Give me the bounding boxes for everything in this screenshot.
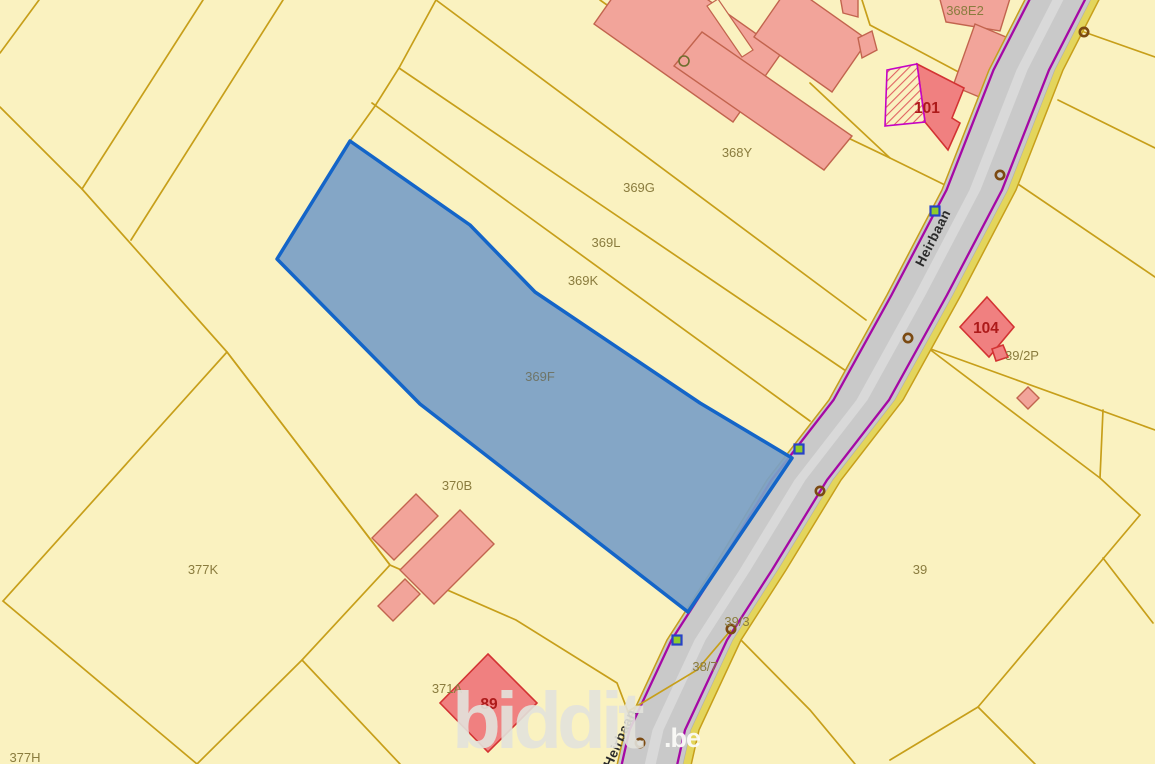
parcel-label-38-7: 38/7	[692, 659, 717, 674]
parcel-label-39-2P: 39/2P	[1005, 348, 1039, 363]
watermark-be-suffix: .be	[664, 723, 701, 753]
parcel-label-39: 39	[913, 562, 927, 577]
building-number-101: 101	[914, 100, 940, 117]
parcel-label-370B: 370B	[442, 478, 472, 493]
parcel-label-369K: 369K	[568, 273, 599, 288]
survey-point-marker	[673, 636, 682, 645]
watermark-biddit: biddit	[452, 676, 644, 764]
building-number-104: 104	[973, 320, 999, 337]
parcel-label-39-3: 39/3	[724, 614, 749, 629]
parcel-label-369G: 369G	[623, 180, 655, 195]
parcel-label-377K: 377K	[188, 562, 219, 577]
map-viewport[interactable]: 368E2368Y369G369L369K370B377K377H371A39/…	[0, 0, 1155, 764]
survey-point-marker	[795, 445, 804, 454]
parcel-label-368E2: 368E2	[946, 3, 984, 18]
parcel-label-369L: 369L	[592, 235, 621, 250]
parcel-label-368Y: 368Y	[722, 145, 753, 160]
parcel-label-377H: 377H	[9, 750, 40, 764]
parcel-label-369F: 369F	[525, 369, 555, 384]
cadastral-map[interactable]: 368E2368Y369G369L369K370B377K377H371A39/…	[0, 0, 1155, 764]
